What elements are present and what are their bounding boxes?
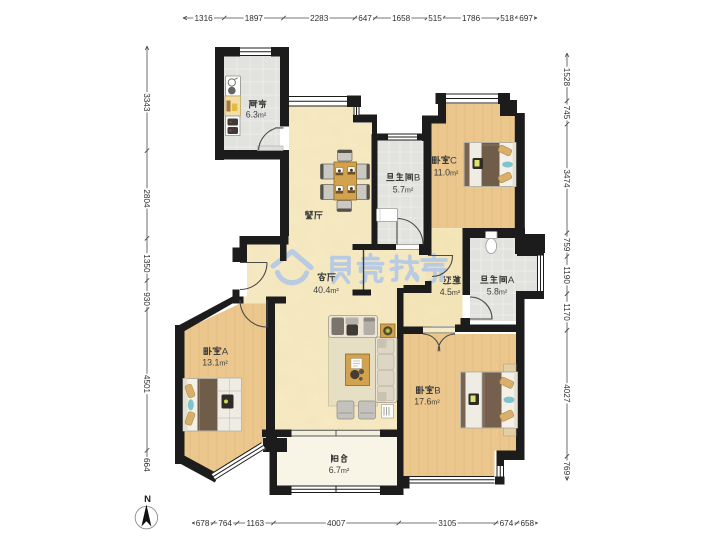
svg-text:1528: 1528 bbox=[562, 68, 571, 87]
svg-text:658: 658 bbox=[520, 519, 534, 528]
svg-text:6.3m²: 6.3m² bbox=[246, 110, 267, 120]
svg-text:674: 674 bbox=[500, 519, 514, 528]
svg-text:B: B bbox=[434, 385, 440, 396]
svg-text:930: 930 bbox=[142, 292, 151, 306]
svg-text:2804: 2804 bbox=[142, 189, 151, 208]
svg-text:17.6m²: 17.6m² bbox=[414, 397, 440, 407]
svg-text:745: 745 bbox=[562, 106, 571, 120]
svg-text:1190: 1190 bbox=[562, 266, 571, 284]
svg-text:C: C bbox=[450, 155, 457, 166]
svg-text:11.0m²: 11.0m² bbox=[434, 168, 459, 178]
svg-text:3343: 3343 bbox=[142, 93, 151, 112]
svg-text:697: 697 bbox=[519, 14, 533, 23]
svg-text:3105: 3105 bbox=[438, 519, 457, 528]
svg-text:769: 769 bbox=[562, 462, 571, 476]
svg-text:1658: 1658 bbox=[392, 14, 411, 23]
svg-text:1316: 1316 bbox=[194, 14, 213, 23]
svg-text:A: A bbox=[508, 275, 515, 286]
svg-text:2283: 2283 bbox=[310, 14, 329, 23]
svg-text:40.4m²: 40.4m² bbox=[313, 285, 339, 295]
svg-text:B: B bbox=[414, 172, 420, 183]
svg-text:6.7m²: 6.7m² bbox=[329, 465, 350, 475]
svg-text:764: 764 bbox=[218, 519, 232, 528]
svg-text:3474: 3474 bbox=[562, 169, 571, 188]
svg-text:4.5m²: 4.5m² bbox=[440, 287, 461, 297]
svg-text:N: N bbox=[144, 494, 151, 505]
svg-text:1350: 1350 bbox=[142, 254, 151, 273]
svg-text:1163: 1163 bbox=[246, 519, 264, 528]
svg-text:664: 664 bbox=[142, 458, 151, 472]
svg-text:515: 515 bbox=[428, 14, 442, 23]
svg-text:1897: 1897 bbox=[245, 14, 264, 23]
svg-text:4027: 4027 bbox=[562, 384, 571, 403]
svg-text:1786: 1786 bbox=[462, 14, 481, 23]
svg-text:5.8m²: 5.8m² bbox=[487, 287, 508, 297]
svg-text:759: 759 bbox=[562, 238, 571, 252]
svg-text:4007: 4007 bbox=[327, 519, 346, 528]
svg-text:678: 678 bbox=[196, 519, 210, 528]
svg-text:5.7m²: 5.7m² bbox=[393, 185, 414, 195]
svg-text:647: 647 bbox=[358, 14, 372, 23]
svg-text:4501: 4501 bbox=[142, 375, 151, 394]
svg-text:518: 518 bbox=[500, 14, 514, 23]
svg-text:A: A bbox=[222, 346, 229, 357]
svg-text:13.1m²: 13.1m² bbox=[202, 358, 228, 368]
svg-text:1170: 1170 bbox=[562, 303, 571, 321]
